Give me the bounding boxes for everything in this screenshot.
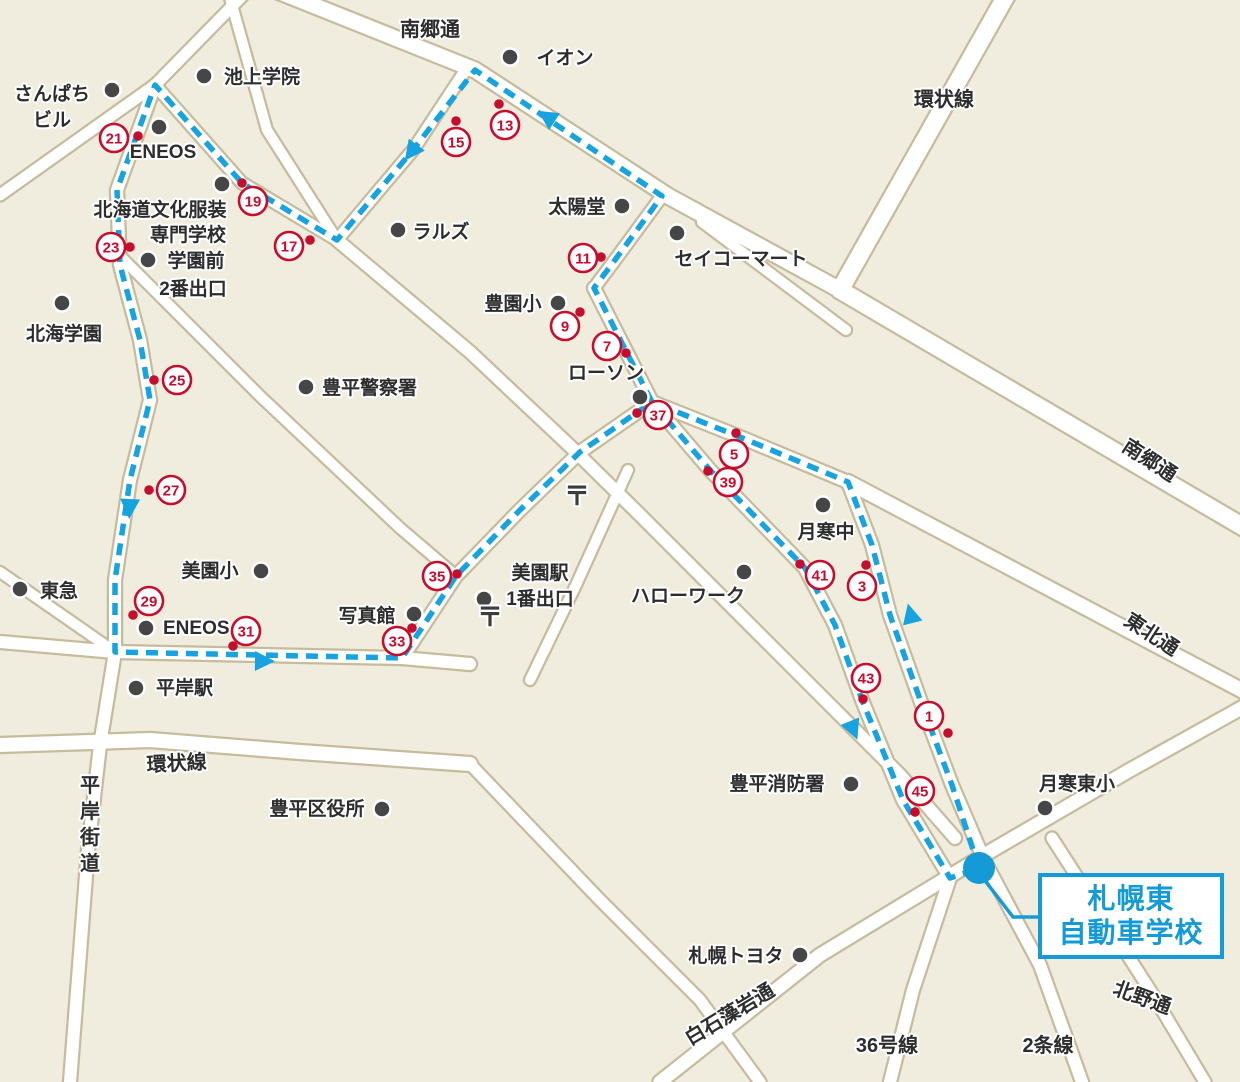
landmark-dot — [550, 295, 567, 312]
waypoint-dot — [703, 466, 713, 476]
waypoint-number: 23 — [103, 240, 120, 257]
landmark-label: 1番出口 — [506, 587, 574, 610]
landmark-label: 豊園小 — [484, 292, 541, 315]
landmark-ralse: ラルズ — [390, 220, 470, 243]
landmark-tsukisamu-chu: 月寒中 — [796, 497, 854, 544]
landmark-dot — [138, 620, 155, 637]
waypoint-dot — [149, 375, 159, 385]
waypoint-dot — [133, 131, 143, 141]
landmark-label: 北海道文化服装 — [93, 198, 226, 221]
landmark-taiyodo: 太陽堂 — [548, 195, 630, 218]
landmark-hiragishi-sta: 平岸駅 — [128, 677, 215, 699]
waypoint-dot — [452, 569, 462, 579]
landmark-label: イオン — [536, 48, 593, 69]
landmark-dot — [214, 176, 231, 193]
school-name-line1: 札幌東 — [1087, 882, 1174, 916]
waypoint-number: 21 — [106, 131, 123, 148]
landmark-dot — [12, 581, 29, 598]
landmark-dot — [1037, 800, 1054, 817]
landmark-label: ビル — [33, 109, 71, 131]
road-label: 2条線 — [1022, 1033, 1073, 1057]
landmark-sapporo-toyota: 札幌トヨタ — [687, 944, 808, 967]
waypoint-dot — [858, 694, 868, 704]
landmark-dot — [128, 680, 145, 697]
waypoint-number: 13 — [497, 118, 514, 135]
post-office-icon: 〒 — [564, 481, 590, 511]
waypoint-dot — [861, 560, 871, 570]
landmark-label: 北海学園 — [26, 322, 102, 345]
waypoint-15: 15 — [442, 116, 470, 156]
landmark-dot — [502, 49, 519, 66]
waypoint-dot — [494, 99, 504, 109]
road-casing — [402, 402, 652, 658]
landmark-dot — [253, 563, 270, 580]
landmark-label: ENEOS — [163, 618, 230, 639]
waypoint-number: 43 — [858, 671, 875, 688]
landmark-dot — [406, 606, 423, 623]
waypoint-number: 11 — [575, 251, 591, 268]
waypoint-dot — [128, 610, 138, 620]
road — [840, 290, 1240, 528]
landmark-label: 写真館 — [338, 604, 395, 627]
landmark-label: 学園前 — [167, 249, 224, 272]
waypoint-number: 41 — [812, 568, 829, 585]
landmark-dot — [792, 947, 809, 964]
waypoint-number: 15 — [448, 135, 465, 152]
landmark-label: 豊平消防署 — [729, 772, 824, 795]
landmark-dot — [843, 776, 860, 793]
landmark-label: セイコーマート — [674, 249, 807, 270]
road — [840, 0, 1015, 290]
landmark-label: 太陽堂 — [548, 195, 605, 218]
school-marker — [963, 852, 995, 884]
landmark-eneos-south: ENEOS — [138, 618, 230, 639]
road-label: 36号線 — [856, 1033, 918, 1057]
landmark-label: 専門学校 — [150, 223, 227, 246]
landmark-dot — [298, 379, 315, 396]
waypoint-number: 33 — [389, 634, 406, 651]
waypoint-dot — [305, 235, 315, 245]
waypoint-dot — [451, 116, 461, 126]
waypoint-dot — [632, 408, 642, 418]
landmark-hokkai-gakuen: 北海学園 — [26, 295, 102, 346]
post-office-icon: 〒 — [477, 602, 503, 632]
landmark-toyohira-police: 豊平警察署 — [298, 376, 418, 399]
road-label: 環状線 — [146, 749, 207, 776]
waypoint-number: 3 — [858, 579, 866, 596]
route-direction-arrow — [898, 601, 922, 625]
landmark-aeon: イオン — [502, 48, 594, 69]
waypoint-number: 29 — [141, 594, 158, 611]
landmark-dot — [736, 564, 753, 581]
waypoint-dot — [731, 428, 741, 438]
waypoint-number: 45 — [912, 784, 929, 801]
landmark-dot — [140, 252, 157, 269]
landmark-dot — [390, 222, 407, 239]
school-callout: 札幌東 自動車学校 — [1038, 873, 1224, 959]
landmark-dot — [151, 119, 168, 136]
landmark-dot — [374, 801, 391, 818]
waypoint-number: 35 — [429, 569, 446, 586]
waypoint-dot — [795, 559, 805, 569]
waypoint-number: 31 — [238, 624, 255, 641]
landmark-label: 月寒中 — [796, 520, 854, 543]
waypoint-dot — [575, 307, 585, 317]
landmark-label: 2番出口 — [159, 277, 227, 300]
waypoint-dot — [237, 178, 247, 188]
road-label: 南郷通 — [400, 18, 460, 41]
road — [402, 402, 652, 658]
landmark-label: 美園小 — [181, 559, 238, 582]
waypoint-number: 39 — [720, 475, 737, 492]
waypoint-number: 17 — [281, 239, 298, 256]
waypoint-number: 25 — [169, 373, 186, 390]
landmark-dot — [196, 68, 213, 85]
landmark-label: ENEOS — [130, 142, 197, 163]
landmark-label: 池上学院 — [224, 65, 300, 88]
landmark-label: ローソン — [568, 363, 644, 384]
waypoint-number: 9 — [561, 319, 569, 336]
waypoint-39: 39 — [703, 466, 742, 496]
waypoint-number: 27 — [163, 483, 180, 500]
waypoint-17: 17 — [275, 232, 315, 260]
landmark-shashinkan: 写真館 — [338, 604, 422, 627]
landmark-label: ハローワーク — [631, 585, 745, 607]
landmark-dot — [104, 82, 121, 99]
waypoint-29: 29 — [128, 587, 163, 620]
landmark-misono-sho: 美園小 — [181, 559, 269, 582]
landmark-label: 豊平警察署 — [322, 376, 417, 399]
waypoint-dot — [910, 807, 920, 817]
landmark-label: 平岸駅 — [156, 677, 214, 699]
landmark-toyohira-fire: 豊平消防署 — [729, 772, 859, 795]
landmark-tokyu: 東急 — [12, 579, 79, 602]
school-name-line2: 自動車学校 — [1058, 916, 1203, 950]
landmark-label: 豊平区役所 — [269, 797, 364, 820]
landmark-dot — [669, 225, 686, 242]
waypoint-number: 37 — [650, 408, 667, 425]
map-stage: 池上学院さんぱちビルENEOS北海道文化服装専門学校学園前2番出口北海学園イオン… — [0, 0, 1240, 1082]
landmark-hoen-sho: 豊園小 — [484, 292, 566, 315]
landmark-toyohira-kuyakusho: 豊平区役所 — [269, 797, 390, 820]
landmark-label: 札幌トヨタ — [687, 944, 783, 967]
landmark-label: 月寒東小 — [1038, 772, 1115, 795]
landmark-label: さんぱち — [14, 82, 90, 105]
waypoint-dot — [125, 242, 135, 252]
waypoint-31: 31 — [228, 617, 260, 651]
landmark-label: ラルズ — [412, 220, 469, 243]
road-label: 環状線 — [914, 87, 974, 111]
landmark-dot — [815, 497, 832, 514]
waypoint-number: 7 — [603, 339, 611, 356]
landmark-label: 美園駅 — [511, 561, 569, 584]
landmark-dot — [632, 389, 649, 406]
landmark-dot — [54, 295, 71, 312]
waypoint-number: 1 — [925, 709, 933, 726]
waypoint-dot — [144, 485, 154, 495]
waypoint-dot — [943, 728, 953, 738]
landmark-dot — [614, 198, 631, 215]
waypoint-27: 27 — [144, 476, 185, 504]
waypoint-number: 5 — [730, 447, 738, 464]
landmark-label: 東急 — [40, 579, 78, 602]
waypoint-number: 19 — [245, 194, 262, 211]
waypoint-dot — [621, 348, 631, 358]
landmark-ikegami-gakuin: 池上学院 — [196, 65, 301, 88]
